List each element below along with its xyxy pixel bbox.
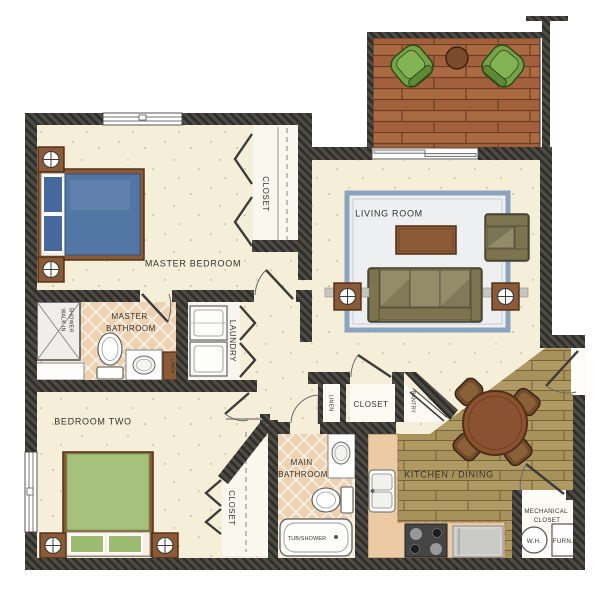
end-table-lamp: [334, 283, 361, 310]
bedroom-two-pillow: [108, 535, 142, 553]
end-table-lamp: [492, 283, 519, 310]
deck-sliding-door: [372, 148, 478, 159]
nightstand-lamp: [38, 147, 64, 172]
nightstand-lamp: [40, 533, 66, 558]
master-bedroom-label: MASTER BEDROOM: [145, 258, 241, 268]
bedroom-two-mattress: [67, 454, 149, 530]
walk-in-shower-label-line2: SHOWER: [68, 307, 74, 332]
floor-plan-drawing: LINEN TUB/SHOWER: [0, 0, 600, 589]
main-vanity-sink: [328, 434, 355, 478]
floor-plan-page: LINEN TUB/SHOWER: [0, 0, 600, 589]
console-bar: [519, 288, 528, 297]
armchair: [485, 214, 529, 261]
walk-in-shower-label-line1: WALK IN: [60, 308, 66, 331]
console-bar: [325, 288, 334, 297]
bedroom-two-pillow: [70, 535, 104, 553]
water-heater-label: W.H.: [527, 538, 542, 545]
master-linen-label: LINEN: [170, 359, 175, 374]
master-vanity-sink: [126, 350, 162, 380]
console-bar: [483, 288, 492, 297]
living-room-label: LIVING ROOM: [355, 208, 423, 218]
pantry-label: PANTRY: [410, 391, 416, 414]
kitchen-dining-label: KITCHEN / DINING: [404, 469, 494, 479]
kitchen-sink: [369, 470, 395, 512]
dining-table: [463, 391, 527, 455]
tub-shower: TUB/SHOWER: [280, 519, 352, 556]
master-bed-pillow: [43, 176, 63, 213]
bedroom-two-label: BEDROOM TWO: [54, 416, 132, 426]
master-toilet: [97, 333, 123, 379]
hall-linen-label: LINEN: [328, 395, 334, 412]
master-bed-pillow: [43, 215, 63, 252]
console-bar: [361, 288, 369, 297]
refrigerator: [453, 526, 503, 557]
nightstand-lamp: [38, 257, 64, 282]
shower-bench: [32, 363, 84, 380]
bedroom-two-closet-label: CLOSET: [227, 490, 236, 526]
furnace-label: FURN.: [553, 538, 573, 545]
stove: [405, 524, 447, 557]
bedroom-two-window: [25, 452, 37, 532]
deck-table: [446, 47, 468, 69]
master-bedroom-window: [103, 113, 182, 125]
laundry-label: LAUNDRY: [228, 320, 237, 362]
hall-closet-label: CLOSET: [353, 400, 388, 409]
sofa: [368, 268, 482, 322]
main-toilet: [312, 487, 353, 513]
coffee-table: [396, 226, 456, 254]
nightstand-lamp: [152, 533, 178, 558]
master-closet-label: CLOSET: [261, 176, 270, 212]
master-closet-floor: [253, 125, 298, 247]
tub-shower-label: TUB/SHOWER: [288, 536, 327, 542]
